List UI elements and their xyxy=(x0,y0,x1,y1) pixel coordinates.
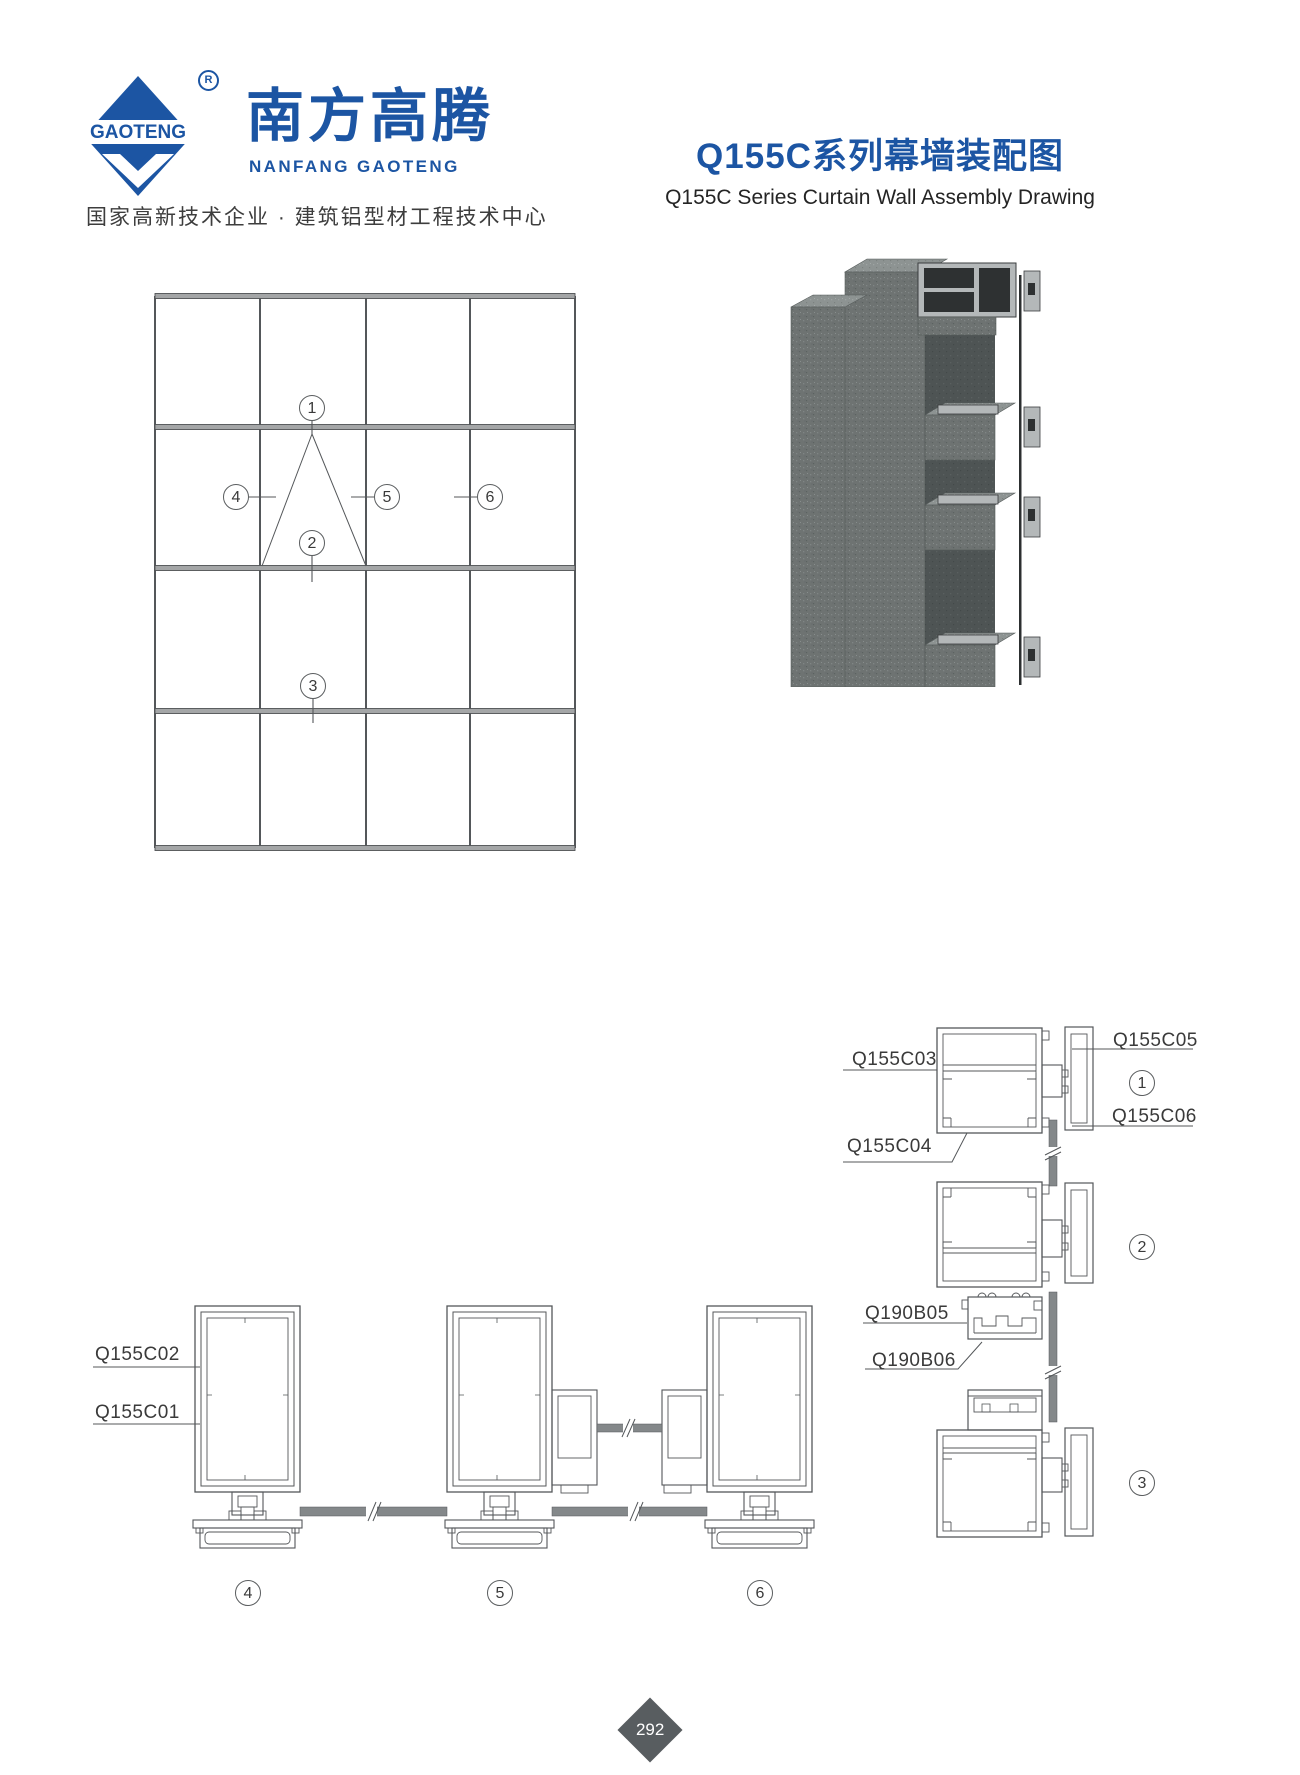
mullion-section-4 xyxy=(193,1306,302,1548)
registered-trademark-icon: R xyxy=(198,70,219,91)
catalog-page: GAOTENG R 南方高腾 NANFANG GAOTENG 国家高新技术企业 … xyxy=(0,0,1300,1775)
fixed-glass-panes xyxy=(300,1502,707,1521)
part-label-q190b05: Q190B05 xyxy=(865,1303,949,1325)
transom-section-2 xyxy=(937,1182,1093,1287)
page-number-diamond: 292 xyxy=(617,1697,682,1762)
elevation-callout-2: 2 xyxy=(299,530,325,556)
section-callout-1: 1 xyxy=(1129,1070,1155,1096)
section-callout-2: 2 xyxy=(1129,1234,1155,1260)
brand-name-en: NANFANG GAOTENG xyxy=(249,157,460,177)
part-label-q155c01: Q155C01 xyxy=(95,1402,180,1424)
transom-section-1 xyxy=(937,1027,1093,1186)
elevation-callout-5: 5 xyxy=(374,484,400,510)
part-label-q190b06: Q190B06 xyxy=(872,1350,956,1372)
vent-sash-sections xyxy=(552,1390,707,1493)
q190b-subassembly xyxy=(962,1292,1061,1422)
section-callout-3: 3 xyxy=(1129,1470,1155,1496)
page-number: 292 xyxy=(636,1720,664,1740)
elevation-mullions xyxy=(155,296,575,848)
glass-pane xyxy=(1049,1292,1057,1422)
page-title-en: Q155C Series Curtain Wall Assembly Drawi… xyxy=(640,186,1120,210)
page-title-block: Q155C系列幕墙装配图 Q155C Series Curtain Wall A… xyxy=(640,128,1120,210)
curtain-wall-3d-render xyxy=(788,255,1048,687)
transom-section-3 xyxy=(937,1390,1093,1537)
elevation-callout-3: 3 xyxy=(300,673,326,699)
brand-name-cn: 南方高腾 xyxy=(246,88,494,146)
part-label-q155c02: Q155C02 xyxy=(95,1344,180,1366)
elevation-callout-4: 4 xyxy=(223,484,249,510)
elevation-callout-6: 6 xyxy=(477,484,503,510)
horizontal-section-details xyxy=(85,1290,830,1610)
part-label-q155c06: Q155C06 xyxy=(1112,1106,1197,1128)
part-label-q155c05: Q155C05 xyxy=(1113,1030,1198,1052)
section-callout-4: 4 xyxy=(235,1580,261,1606)
mullion-section-5 xyxy=(445,1306,554,1548)
section-callout-5: 5 xyxy=(487,1580,513,1606)
part-label-q155c03: Q155C03 xyxy=(852,1049,937,1071)
mullion-section-6 xyxy=(705,1306,814,1548)
section-callout-6: 6 xyxy=(747,1580,773,1606)
part-label-q155c04: Q155C04 xyxy=(847,1136,932,1158)
gaoteng-logo-icon: GAOTENG xyxy=(82,74,194,198)
glass-edge-line xyxy=(1019,275,1022,685)
logo-text: GAOTENG xyxy=(90,122,186,143)
elevation-callout-leaders xyxy=(249,421,477,723)
pressure-plate-clamps xyxy=(1024,271,1040,677)
page-title-cn: Q155C系列幕墙装配图 xyxy=(640,128,1120,179)
elevation-drawing xyxy=(150,280,590,865)
elevation-callout-1: 1 xyxy=(299,395,325,421)
brand-tagline: 国家高新技术企业 · 建筑铝型材工程技术中心 xyxy=(86,201,548,231)
